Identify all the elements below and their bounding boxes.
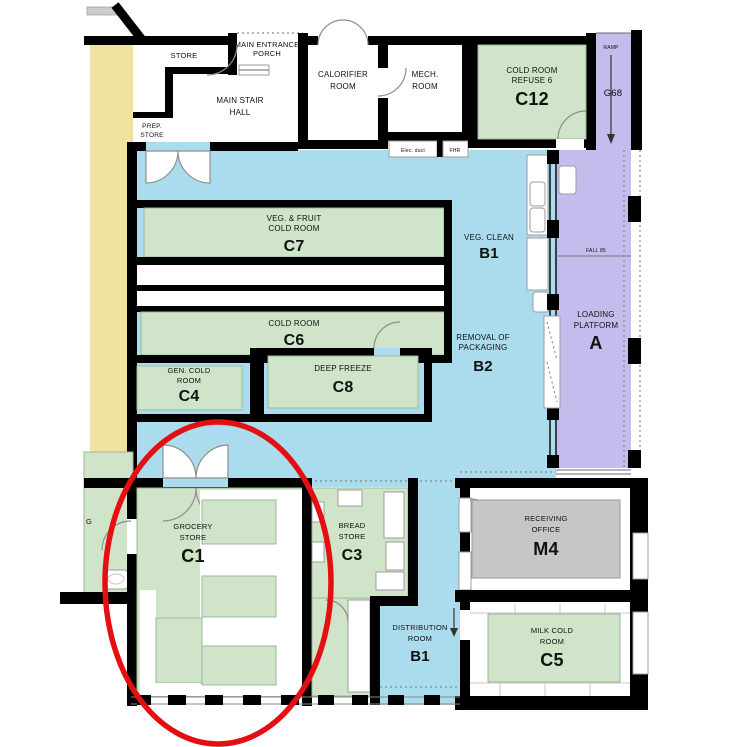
label-c4-code: C4 bbox=[179, 388, 200, 405]
sink-icon bbox=[530, 182, 545, 206]
label-removal: PACKAGING bbox=[459, 343, 508, 352]
label-c7: COLD ROOM bbox=[268, 224, 319, 233]
label-c3: BREAD bbox=[339, 521, 366, 530]
label-distribution: ROOM bbox=[408, 634, 432, 643]
label-porch: MAIN ENTRANCE bbox=[235, 40, 300, 49]
label-prep-store: PREP. bbox=[142, 123, 162, 130]
floor-plan: STORE MAIN ENTRANCE PORCH MAIN STAIR HAL… bbox=[0, 0, 741, 747]
label-calorifier: ROOM bbox=[330, 82, 356, 91]
label-c6-code: C6 bbox=[284, 332, 305, 349]
sink-icon bbox=[530, 208, 545, 232]
shelving bbox=[202, 646, 276, 685]
room-c5-floor bbox=[488, 614, 620, 682]
column bbox=[628, 196, 641, 222]
label-stair-hall: HALL bbox=[230, 108, 251, 117]
label-ramp: RAMP bbox=[603, 45, 619, 51]
label-mech: ROOM bbox=[412, 82, 438, 91]
label-g68: G68 bbox=[604, 88, 623, 99]
label-c3-code: C3 bbox=[342, 547, 363, 564]
distribution-corridor-upper bbox=[415, 487, 460, 606]
label-left-partial: G bbox=[86, 517, 92, 526]
label-c1: STORE bbox=[180, 533, 207, 542]
label-c1: GROCERY bbox=[173, 522, 212, 531]
label-c7: VEG. & FRUIT bbox=[267, 214, 322, 223]
label-m4: RECEIVING bbox=[524, 514, 567, 523]
column bbox=[628, 450, 641, 468]
label-fhr: FHR bbox=[450, 148, 461, 154]
label-c6: COLD ROOM bbox=[268, 319, 319, 328]
label-c1-code: C1 bbox=[181, 546, 204, 566]
label-c12: REFUSE 6 bbox=[512, 76, 553, 85]
label-m4-code: M4 bbox=[533, 539, 558, 559]
label-loading: LOADING bbox=[577, 310, 614, 319]
label-removal: REMOVAL OF bbox=[456, 333, 510, 342]
label-c4: GEN. COLD bbox=[167, 366, 210, 375]
label-porch: PORCH bbox=[253, 49, 281, 58]
label-distribution: DISTRIBUTION bbox=[392, 623, 447, 632]
label-stair-hall: MAIN STAIR bbox=[216, 96, 263, 105]
label-c8-code: C8 bbox=[333, 379, 354, 396]
dashed-wall bbox=[137, 695, 440, 705]
sink-icon bbox=[559, 166, 576, 194]
window bbox=[633, 533, 648, 579]
label-veg-clean: VEG. CLEAN bbox=[464, 233, 514, 242]
roller-door bbox=[544, 316, 560, 408]
label-veg-clean-code: B1 bbox=[479, 245, 499, 262]
label-c4: ROOM bbox=[177, 376, 201, 385]
sink-icon bbox=[533, 292, 549, 312]
label-c5-code: C5 bbox=[540, 650, 563, 670]
label-elec-duct: Elec. duct bbox=[401, 148, 425, 154]
label-c12: COLD ROOM bbox=[506, 66, 557, 75]
label-loading-code: A bbox=[589, 333, 602, 353]
label-c8: DEEP FREEZE bbox=[314, 364, 372, 373]
floor-plan-drawing: STORE MAIN ENTRANCE PORCH MAIN STAIR HAL… bbox=[0, 0, 741, 747]
office-door-gap bbox=[459, 498, 471, 532]
label-calorifier: CALORIFIER bbox=[318, 70, 368, 79]
window bbox=[459, 552, 471, 590]
label-c3: STORE bbox=[339, 532, 366, 541]
label-distribution-code: B1 bbox=[410, 648, 430, 665]
shelving bbox=[202, 500, 276, 544]
label-c5: MILK COLD bbox=[531, 626, 574, 635]
label-loading: PLATFORM bbox=[574, 321, 619, 330]
loading-platform-zone bbox=[556, 150, 631, 468]
label-prep-store: STORE bbox=[140, 132, 164, 139]
label-store: STORE bbox=[171, 51, 198, 60]
label-fall: FALL 85 bbox=[586, 248, 606, 254]
window bbox=[633, 612, 648, 674]
column bbox=[628, 338, 641, 364]
label-c12-code: C12 bbox=[515, 89, 549, 109]
label-c7-code: C7 bbox=[284, 238, 305, 255]
label-removal-code: B2 bbox=[473, 358, 493, 375]
label-mech: MECH. bbox=[412, 70, 439, 79]
label-m4: OFFICE bbox=[532, 525, 561, 534]
shelving bbox=[156, 618, 202, 683]
label-c5: ROOM bbox=[540, 637, 564, 646]
shelving bbox=[202, 576, 276, 617]
counter bbox=[527, 238, 548, 290]
